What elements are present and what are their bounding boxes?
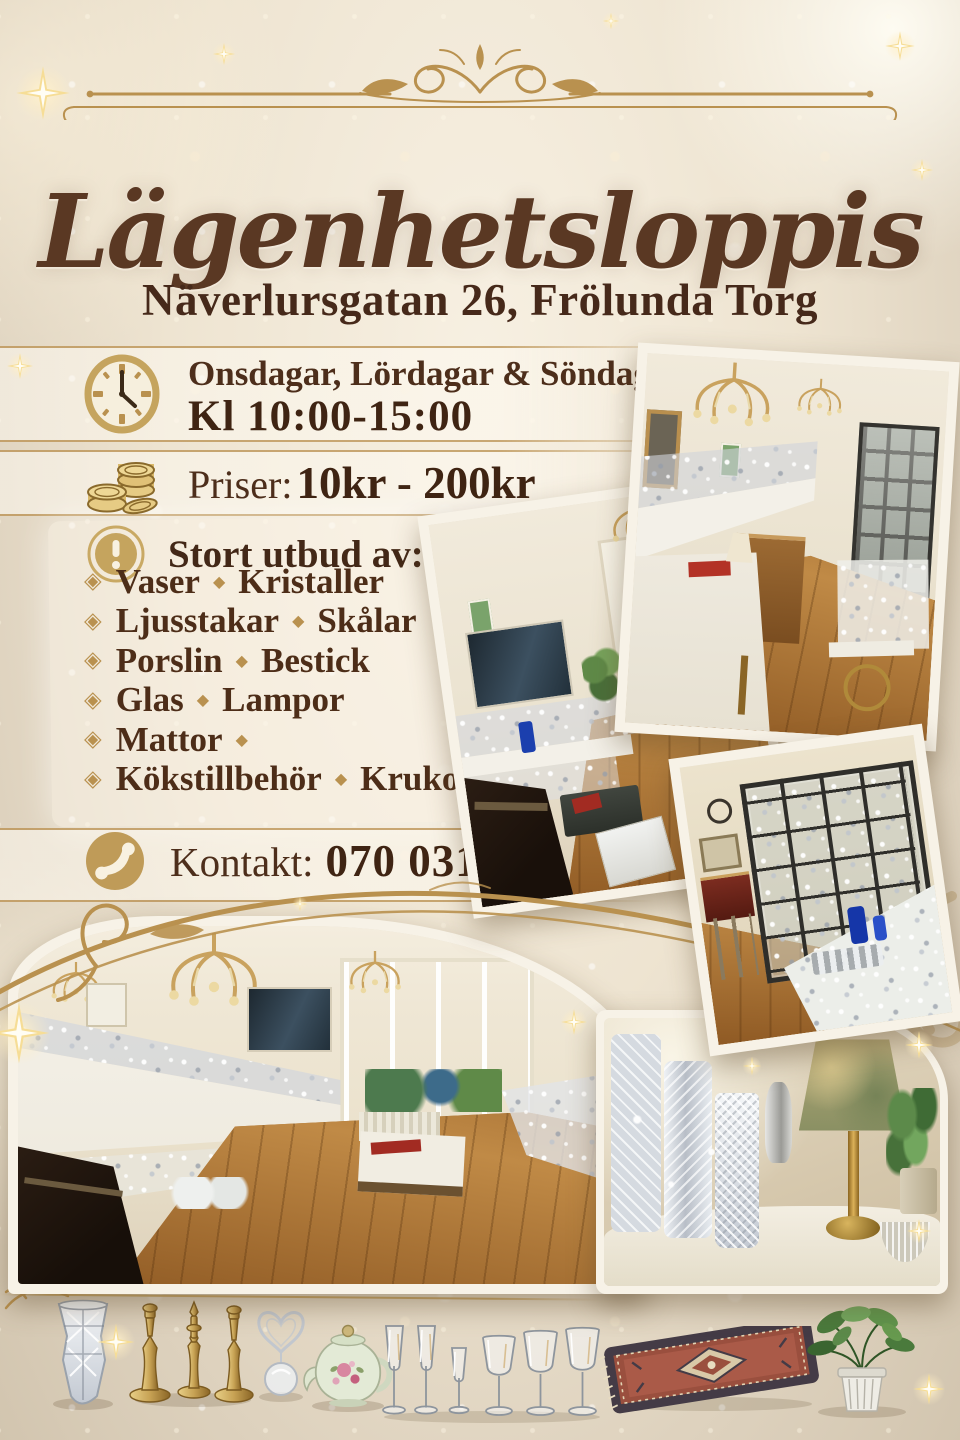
photo-apartment-room-long-tables — [614, 343, 959, 752]
diamond-separator-icon: ◆ — [213, 574, 225, 590]
item-text: Skålar — [317, 601, 416, 641]
item-text: Ljusstakar — [116, 601, 279, 641]
item-text: Bestick — [261, 641, 370, 681]
assortment-item: ◈ Glas ◆ Lampor — [84, 681, 475, 721]
plant-pot — [900, 1168, 937, 1214]
item-text: Porslin — [116, 641, 223, 681]
silver-vase — [765, 1082, 792, 1162]
diamond-bullet-icon: ◈ — [84, 689, 102, 712]
assortment-list: ◈ Vaser ◆ Kristaller ◈ Ljusstakar ◆ Skål… — [84, 562, 475, 799]
item-text: Glas — [116, 680, 184, 720]
product-brass-candlesticks — [128, 1298, 258, 1408]
schedule-days: Onsdagar, Lördagar & Söndagar — [188, 354, 684, 394]
diamond-separator-icon: ◆ — [197, 692, 209, 708]
clock-icon — [84, 354, 160, 434]
chandelier-icon — [679, 359, 787, 441]
side-shelf-items — [838, 560, 929, 650]
assortment-item: ◈ Kökstillbehör ◆ Krukor — [84, 760, 475, 800]
white-plates — [167, 1177, 254, 1209]
product-wine-glasses — [378, 1322, 606, 1424]
photo-display-cabinet-and-table — [668, 724, 960, 1057]
coins-icon — [82, 450, 162, 516]
assortment-item: ◈ Porslin ◆ Bestick — [84, 641, 475, 681]
diamond-bullet-icon: ◈ — [84, 728, 102, 751]
red-folder — [689, 560, 732, 577]
address-line: Näverlursgatan 26, Frölunda Torg — [0, 274, 960, 326]
item-text: Kökstillbehör — [116, 759, 322, 799]
wall-picture — [699, 833, 742, 872]
product-potted-plant — [796, 1292, 928, 1420]
diamond-separator-icon: ◆ — [236, 653, 248, 669]
flea-market-poster: Lägenhetsloppis Näverlursgatan 26, Frölu… — [0, 0, 960, 1440]
diamond-bullet-icon: ◈ — [84, 570, 102, 593]
lamp-base — [826, 1216, 880, 1240]
item-text: Kristaller — [238, 562, 384, 602]
diamond-bullet-icon: ◈ — [84, 649, 102, 672]
schedule-hours: Kl 10:00-15:00 — [188, 394, 684, 440]
item-text: Mattor — [116, 720, 223, 760]
prices-range: 10kr - 200kr — [296, 458, 535, 508]
diamond-bullet-icon: ◈ — [84, 610, 102, 633]
photo-crystal-vases-and-table-lamp — [596, 1010, 948, 1294]
chest-trim — [475, 801, 549, 810]
schedule-row: Onsdagar, Lördagar & Söndagar Kl 10:00-1… — [84, 354, 684, 440]
item-text: Vaser — [116, 562, 200, 602]
prices-label: Priser: — [188, 462, 292, 507]
sparkle-star-icon — [602, 12, 620, 30]
trolley-shelf — [829, 640, 914, 657]
diamond-separator-icon: ◆ — [335, 771, 347, 787]
prices-row: Priser: 10kr - 200kr — [82, 450, 536, 516]
diamond-separator-icon: ◆ — [292, 613, 304, 629]
page-title: Lägenhetsloppis — [0, 172, 960, 291]
lamp-stem — [848, 1131, 859, 1222]
assortment-item: ◈ Ljusstakar ◆ Skålar — [84, 602, 475, 642]
plant-leaves — [886, 1088, 940, 1179]
product-oriental-rug — [596, 1326, 828, 1414]
crystal-glints — [617, 1098, 751, 1205]
item-text: Lampor — [222, 680, 345, 720]
window-plants — [365, 1069, 501, 1112]
diamond-separator-icon: ◆ — [236, 732, 248, 748]
diamond-bullet-icon: ◈ — [84, 768, 102, 791]
assortment-item: ◈ Mattor ◆ — [84, 720, 475, 760]
tv-screen — [465, 619, 574, 709]
assortment-item: ◈ Vaser ◆ Kristaller — [84, 562, 475, 602]
product-crystal-vase — [46, 1296, 120, 1412]
chandelier-icon — [789, 377, 852, 425]
gold-flourish-ornament — [60, 30, 900, 120]
